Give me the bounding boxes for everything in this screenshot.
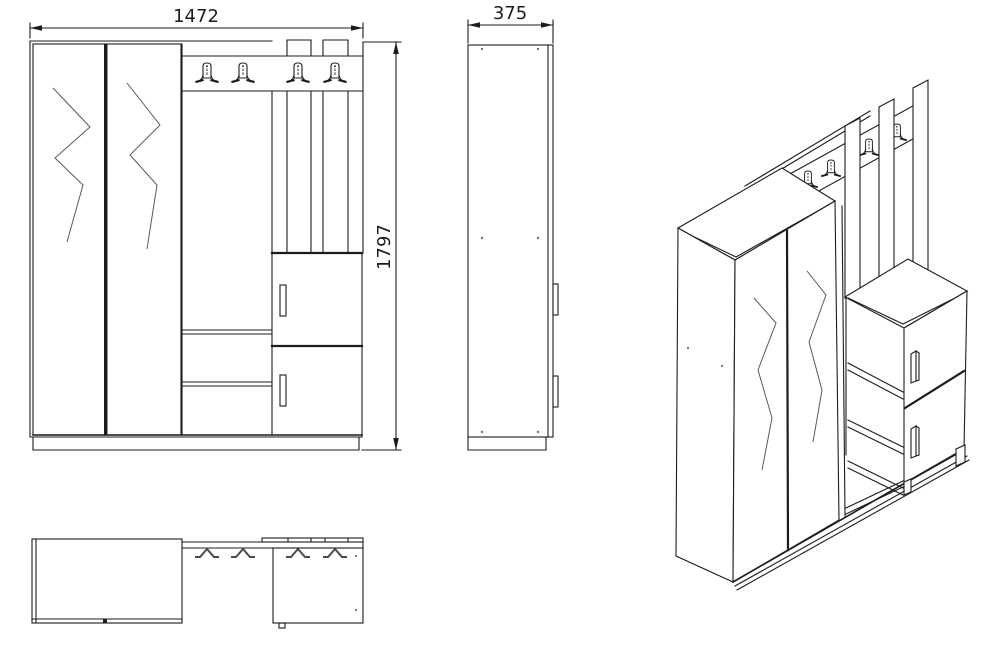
door-divider (104, 44, 108, 435)
cabinet-foot-mark (279, 623, 285, 628)
coat-hook-top-icon (324, 549, 346, 557)
cabinet-handle (280, 375, 286, 406)
depth-dimension: 375 (468, 3, 553, 43)
technical-drawing-page: 1472 1797 (0, 0, 1008, 665)
slat-tops (287, 40, 348, 56)
hook-panel-front (182, 40, 363, 435)
shoe-cabinet-front (272, 253, 362, 437)
dimension-arrowhead-icon (468, 22, 480, 28)
mirror-glint-right (127, 83, 160, 249)
cabinet-handle-side (553, 376, 558, 407)
plinth-front (30, 435, 362, 450)
coat-hook-icon (233, 63, 254, 82)
dimension-arrowhead-icon (30, 25, 42, 31)
cabinet-handle (280, 285, 286, 316)
wardrobe-top (32, 539, 182, 623)
coat-hook-icon (325, 63, 346, 82)
front-view: 1472 1797 (30, 6, 401, 450)
plinth-side (468, 437, 546, 450)
door-divider-mark (103, 619, 107, 623)
open-shelves-front (183, 330, 271, 386)
mirror-glint-left (53, 88, 90, 242)
depth-dimension-label: 375 (493, 3, 527, 24)
shoe-cabinet-top (273, 548, 363, 628)
height-dimension: 1797 (362, 42, 401, 450)
width-dimension-label: 1472 (173, 6, 219, 27)
cabinet-handle-side (553, 284, 558, 315)
drawing-sheet: 1472 1797 (0, 0, 1008, 665)
height-dimension-label: 1797 (374, 224, 395, 270)
wall-slat (879, 99, 894, 278)
coat-hook-top-icon (196, 549, 218, 557)
wardrobe-3d (676, 168, 839, 582)
dimension-arrowhead-icon (393, 42, 399, 54)
side-view: 375 (468, 3, 558, 450)
coat-hook-top-icon (232, 549, 254, 557)
perspective-view (676, 80, 969, 590)
coat-hook-top-icon (287, 549, 309, 557)
dimension-arrowhead-icon (393, 438, 399, 450)
cabinet-foot (956, 445, 965, 466)
cabinet-foot (904, 479, 911, 495)
wall-slat (913, 80, 928, 270)
wardrobe-left-face (676, 228, 735, 582)
top-view (32, 538, 363, 628)
coat-hook-icon (197, 63, 218, 82)
coat-hook-icon (288, 63, 309, 82)
wall-slat (845, 118, 860, 298)
dimension-arrowhead-icon (351, 25, 363, 31)
dimension-arrowhead-icon (541, 22, 553, 28)
width-dimension: 1472 (30, 6, 363, 38)
wardrobe-front (30, 41, 272, 437)
door-divider-3d (787, 231, 788, 550)
side-body (468, 45, 558, 437)
